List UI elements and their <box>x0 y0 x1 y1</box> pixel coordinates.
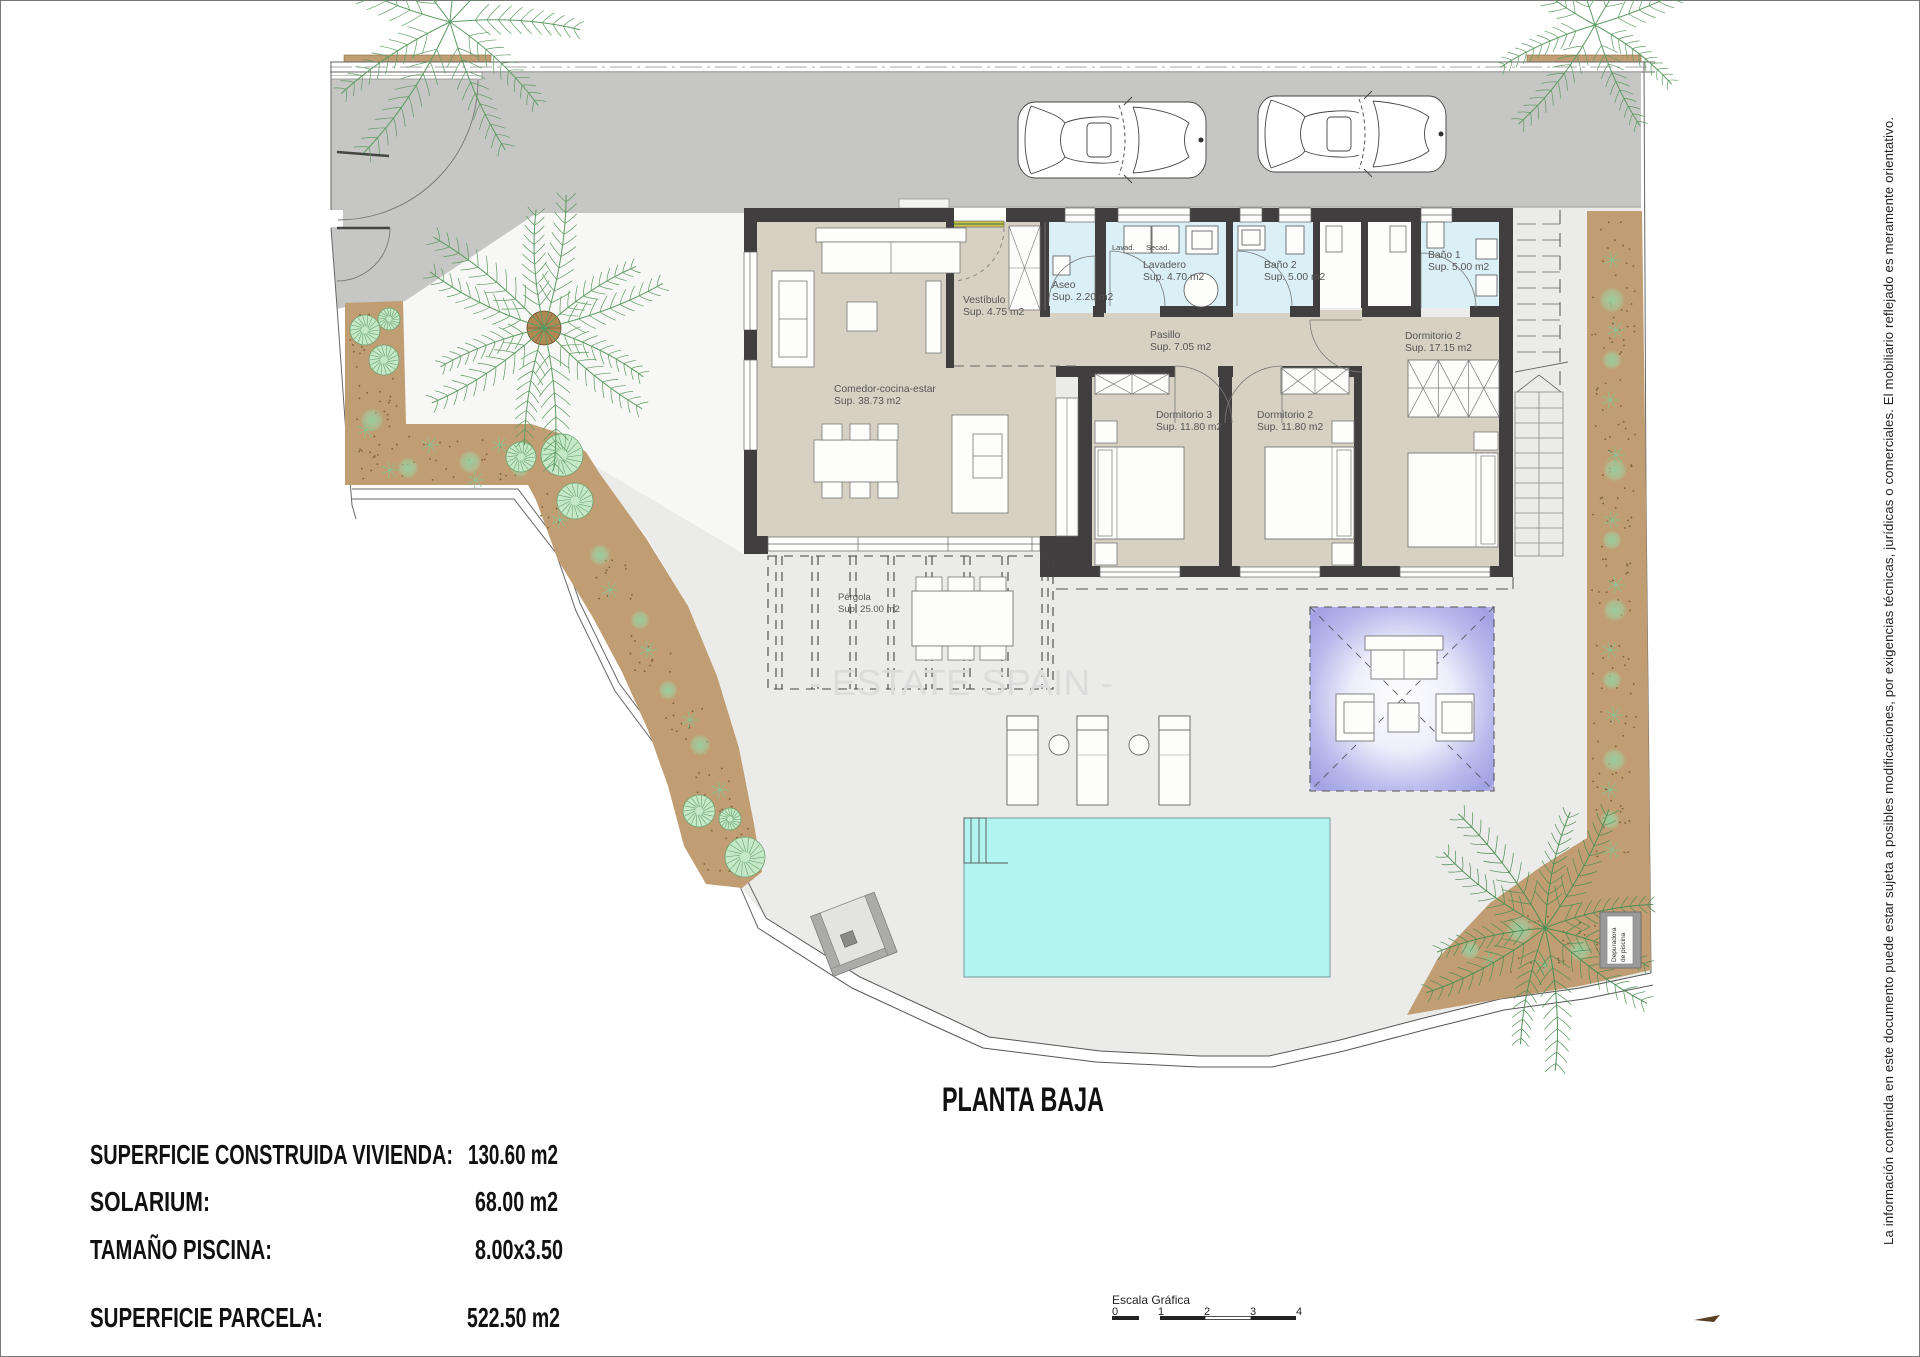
svg-text:Comedor-cocina-estar: Comedor-cocina-estar <box>834 384 936 395</box>
svg-text:522.50 m2: 522.50 m2 <box>467 1302 560 1333</box>
svg-text:Sup. 4.75 m2: Sup. 4.75 m2 <box>963 307 1025 318</box>
svg-text:Pasillo: Pasillo <box>1150 330 1181 341</box>
svg-text:8.00x3.50: 8.00x3.50 <box>475 1234 563 1265</box>
svg-text:Baño 1: Baño 1 <box>1428 250 1461 261</box>
svg-text:Sup. 11.80 m2: Sup. 11.80 m2 <box>1156 422 1222 433</box>
svg-text:4: 4 <box>1296 1306 1302 1318</box>
svg-text:SUPERFICIE PARCELA:: SUPERFICIE PARCELA: <box>90 1302 323 1333</box>
svg-text:Sup. 25.00 m2: Sup. 25.00 m2 <box>838 604 900 615</box>
svg-text:SUPERFICIE CONSTRUIDA VIVIENDA: SUPERFICIE CONSTRUIDA VIVIENDA: <box>90 1139 453 1170</box>
svg-text:TAMAÑO PISCINA:: TAMAÑO PISCINA: <box>90 1234 272 1265</box>
svg-text:Sup. 2.20 m2: Sup. 2.20 m2 <box>1052 292 1114 303</box>
svg-text:68.00 m2: 68.00 m2 <box>475 1186 558 1217</box>
svg-text:Sup. 5.00 m2: Sup. 5.00 m2 <box>1264 272 1326 283</box>
svg-text:Baño 2: Baño 2 <box>1264 260 1297 271</box>
svg-text:PLANTA BAJA: PLANTA BAJA <box>942 1081 1104 1119</box>
svg-text:La información contenida en es: La información contenida en este documen… <box>1881 117 1896 1245</box>
svg-text:Sup. 38.73 m2: Sup. 38.73 m2 <box>834 396 901 407</box>
svg-text:130.60 m2: 130.60 m2 <box>468 1139 558 1170</box>
svg-text:Aseo: Aseo <box>1052 280 1076 291</box>
svg-text:Depuradora: Depuradora <box>1611 927 1618 962</box>
svg-text:Sup. 11.80 m2: Sup. 11.80 m2 <box>1257 422 1323 433</box>
svg-text:Secad.: Secad. <box>1146 243 1169 252</box>
svg-text:Dormitorio 2: Dormitorio 2 <box>1257 410 1313 421</box>
svg-text:Lavad.: Lavad. <box>1112 243 1135 252</box>
svg-text:Dormitorio 3: Dormitorio 3 <box>1156 410 1212 421</box>
svg-text:Vestíbulo: Vestíbulo <box>963 295 1006 306</box>
svg-text:Dormitorio 2: Dormitorio 2 <box>1405 331 1461 342</box>
svg-text:Pérgola: Pérgola <box>838 592 871 603</box>
svg-text:Sup. 7.05 m2: Sup. 7.05 m2 <box>1150 342 1212 353</box>
svg-text:Lavadero: Lavadero <box>1143 260 1186 271</box>
svg-text:Escala Gráfica: Escala Gráfica <box>1112 1293 1190 1307</box>
svg-text:SOLARIUM:: SOLARIUM: <box>90 1186 210 1217</box>
svg-text:Sup. 17.15 m2: Sup. 17.15 m2 <box>1405 343 1472 354</box>
svg-text:Sup. 4.70 m2: Sup. 4.70 m2 <box>1143 272 1205 283</box>
svg-text:Sup. 5.00 m2: Sup. 5.00 m2 <box>1428 262 1490 273</box>
svg-text:- ESTATE SPAIN -: - ESTATE SPAIN - <box>809 662 1113 703</box>
svg-text:de piscina: de piscina <box>1620 932 1627 962</box>
